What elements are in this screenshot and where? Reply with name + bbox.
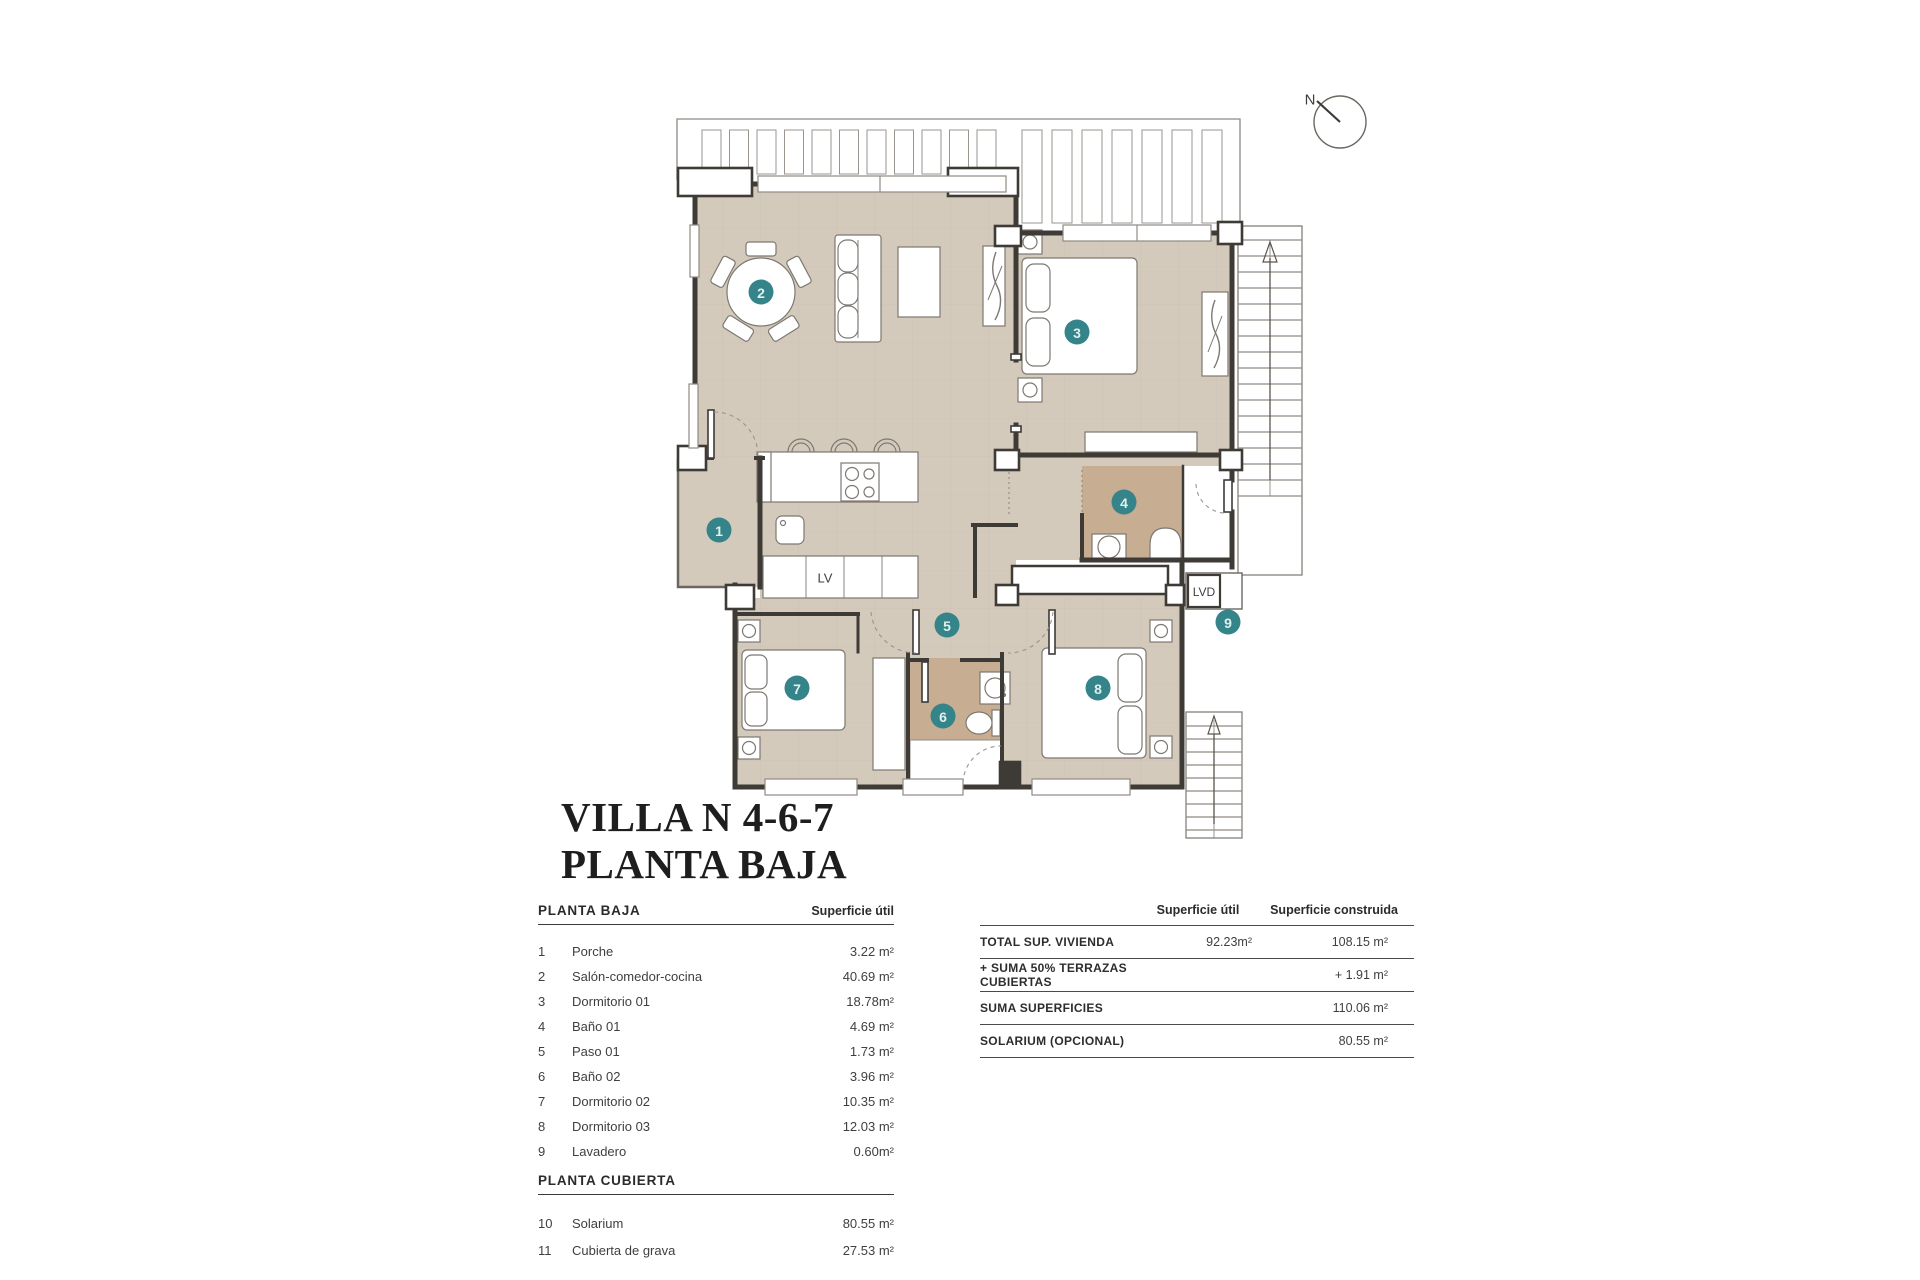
table-row: 1 Porche 3.22 m² bbox=[538, 939, 894, 964]
nightstand bbox=[1150, 736, 1172, 758]
planta-baja-rows: 1 Porche 3.22 m² 2 Salón-comedor-cocina … bbox=[538, 939, 894, 1164]
page-title: VILLA N 4-6-7 PLANTA BAJA bbox=[561, 794, 847, 888]
svg-text:2: 2 bbox=[757, 285, 765, 301]
svg-text:8: 8 bbox=[1094, 681, 1102, 697]
wardrobe bbox=[873, 658, 905, 770]
room-areas-table: PLANTA BAJA Superficie útil 1 Porche 3.2… bbox=[538, 903, 894, 1264]
table-row: 8 Dormitorio 03 12.03 m² bbox=[538, 1114, 894, 1139]
staircase-lower bbox=[1186, 712, 1242, 838]
table-row: 6 Baño 02 3.96 m² bbox=[538, 1064, 894, 1089]
shower bbox=[1150, 528, 1181, 560]
table-row: 2 Salón-comedor-cocina 40.69 m² bbox=[538, 964, 894, 989]
washbasin bbox=[1092, 534, 1126, 561]
lv-label: LV bbox=[818, 571, 833, 586]
section-header-planta-baja: PLANTA BAJA Superficie útil bbox=[538, 903, 894, 925]
table-row: 11 Cubierta de grava 27.53 m² bbox=[538, 1237, 894, 1264]
totals-row: SOLARIUM (OPCIONAL) 80.55 m² bbox=[980, 1025, 1414, 1058]
room-badge-1: 1 bbox=[707, 518, 732, 543]
bedroom-03-top-wall bbox=[1012, 566, 1168, 594]
room-badge-3: 3 bbox=[1065, 320, 1090, 345]
coffee-table bbox=[898, 247, 940, 317]
totals-row: SUMA SUPERFICIES 110.06 m² bbox=[980, 992, 1414, 1025]
section-title: PLANTA BAJA bbox=[538, 903, 641, 918]
lvd-label: LVD bbox=[1193, 585, 1216, 599]
sideboard bbox=[983, 246, 1005, 326]
table-row: 10 Solarium 80.55 m² bbox=[538, 1210, 894, 1237]
svg-text:1: 1 bbox=[715, 523, 723, 539]
north-compass: N bbox=[1305, 92, 1366, 149]
svg-text:5: 5 bbox=[943, 618, 951, 634]
room-badge-2: 2 bbox=[749, 280, 774, 305]
table-row: 7 Dormitorio 02 10.35 m² bbox=[538, 1089, 894, 1114]
room-badge-8: 8 bbox=[1086, 676, 1111, 701]
room-badge-9: 9 bbox=[1216, 610, 1241, 635]
kitchen-sink bbox=[776, 516, 804, 544]
room-badge-5: 5 bbox=[935, 613, 960, 638]
floor-plan: LVD bbox=[0, 0, 1920, 1280]
svg-text:6: 6 bbox=[939, 709, 947, 725]
totals-header: Superficie útil Superficie construida bbox=[980, 903, 1414, 926]
room-badge-4: 4 bbox=[1112, 490, 1137, 515]
section-title: PLANTA CUBIERTA bbox=[538, 1173, 676, 1188]
table-row: 9 Lavadero 0.60m² bbox=[538, 1139, 894, 1164]
north-label: N bbox=[1305, 92, 1316, 109]
totals-row: + SUMA 50% TERRAZAS CUBIERTAS + 1.91 m² bbox=[980, 959, 1414, 992]
title-line-2: PLANTA BAJA bbox=[561, 841, 847, 888]
table-row: 5 Paso 01 1.73 m² bbox=[538, 1039, 894, 1064]
section-header-planta-cubierta: PLANTA CUBIERTA bbox=[538, 1173, 894, 1195]
svg-text:4: 4 bbox=[1120, 495, 1128, 511]
title-line-1: VILLA N 4-6-7 bbox=[561, 794, 847, 841]
planta-cubierta-rows: 10 Solarium 80.55 m² 11 Cubierta de grav… bbox=[538, 1210, 894, 1264]
svg-text:9: 9 bbox=[1224, 615, 1232, 631]
staircase-upper bbox=[1238, 226, 1302, 575]
column-header-superficie-util: Superficie útil bbox=[1142, 903, 1254, 917]
entrance-door-leaf bbox=[708, 410, 714, 458]
kitchen-island bbox=[763, 556, 918, 598]
toilet bbox=[992, 710, 1000, 736]
nightstand bbox=[738, 620, 760, 642]
column-header-superficie-construida: Superficie construida bbox=[1254, 903, 1414, 917]
dresser bbox=[1202, 292, 1228, 376]
nightstand bbox=[1018, 378, 1042, 402]
sofa bbox=[835, 235, 881, 342]
nightstand bbox=[738, 737, 760, 759]
table-row: 4 Baño 01 4.69 m² bbox=[538, 1014, 894, 1039]
room-badge-7: 7 bbox=[785, 676, 810, 701]
svg-text:3: 3 bbox=[1073, 325, 1081, 341]
svg-text:7: 7 bbox=[793, 681, 801, 697]
laundry-closet: LVD bbox=[1186, 573, 1242, 609]
room-badge-6: 6 bbox=[931, 704, 956, 729]
floor-plan-sheet: LVD bbox=[0, 0, 1920, 1280]
nightstand bbox=[1150, 620, 1172, 642]
column-header-superficie-util: Superficie útil bbox=[811, 904, 894, 918]
table-row: 3 Dormitorio 01 18.78m² bbox=[538, 989, 894, 1014]
totals-table: Superficie útil Superficie construida TO… bbox=[980, 903, 1414, 1058]
wardrobe bbox=[1085, 432, 1197, 452]
totals-row: TOTAL SUP. VIVIENDA 92.23m² 108.15 m² bbox=[980, 926, 1414, 959]
